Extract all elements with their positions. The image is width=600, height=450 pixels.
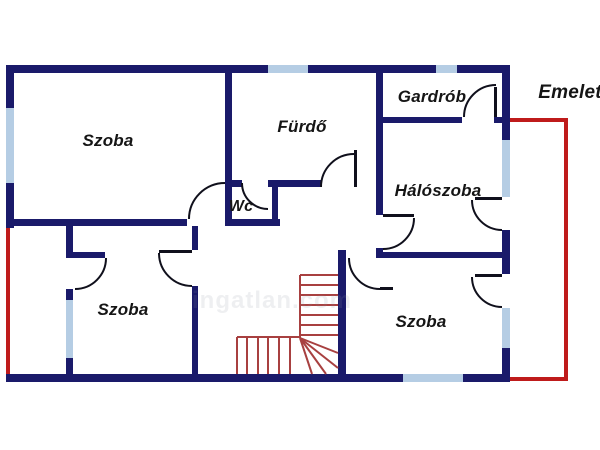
floor-plan: Szoba Fürdő Gardrób Hálószoba Wc Szoba S…: [0, 0, 600, 450]
room-label-szoba-bottom-right: Szoba: [395, 312, 446, 332]
window-segment: [403, 374, 463, 382]
wall-segment: [383, 117, 462, 123]
room-label-furdo: Fürdő: [277, 117, 326, 137]
door-swing-arc: [383, 218, 414, 249]
wall-segment: [6, 219, 187, 226]
wall-segment: [232, 180, 242, 187]
door-swing-arc: [472, 200, 502, 230]
window-segment: [436, 65, 457, 73]
lower-floor-outline-line: [564, 118, 568, 381]
wall-segment: [66, 358, 73, 374]
wall-segment: [502, 348, 510, 382]
wall-segment: [502, 65, 510, 140]
floor-plan-canvas: [0, 0, 600, 450]
wall-segment: [376, 65, 383, 215]
window-segment: [502, 308, 510, 348]
room-label-szoba-top-left: Szoba: [82, 131, 133, 151]
watermark: ingatlan.com: [192, 287, 352, 315]
lower-floor-outline-line: [510, 118, 568, 122]
door-swing-arc: [464, 85, 496, 117]
door-leaf: [380, 287, 393, 290]
wall-segment: [272, 182, 278, 219]
window-segment: [6, 108, 14, 183]
wall-segment: [494, 117, 502, 123]
wall-segment: [380, 252, 502, 258]
room-label-gardrob: Gardrób: [398, 87, 466, 107]
wall-segment: [192, 226, 198, 250]
wall-segment: [66, 289, 73, 300]
wall-segment: [225, 219, 280, 226]
room-label-wc: Wc: [229, 198, 253, 216]
window-segment: [66, 300, 73, 358]
door-leaf: [494, 87, 497, 117]
window-segment: [502, 140, 510, 197]
lower-floor-outline-line: [510, 377, 564, 381]
door-leaf: [159, 250, 192, 253]
wall-segment: [268, 180, 322, 187]
floor-title-emelet: Emelet: [538, 82, 600, 104]
door-leaf: [475, 274, 502, 277]
door-leaf: [383, 214, 414, 217]
wall-segment: [66, 226, 73, 258]
wall-segment: [502, 230, 510, 274]
door-swing-arc: [349, 258, 380, 289]
door-swing-arc: [472, 277, 502, 307]
door-leaf: [354, 150, 357, 187]
door-swing-arc: [189, 183, 225, 219]
window-segment: [268, 65, 308, 73]
door-swing-arc: [159, 253, 192, 286]
room-label-szoba-bottom-left: Szoba: [97, 300, 148, 320]
lower-floor-outline-line: [6, 228, 10, 374]
door-swing-arc: [75, 258, 106, 289]
door-swing-arc: [321, 154, 354, 187]
wall-segment: [6, 65, 510, 73]
wall-segment: [73, 252, 105, 258]
wall-segment: [6, 65, 14, 108]
room-label-haloszoba: Hálószoba: [395, 181, 482, 201]
